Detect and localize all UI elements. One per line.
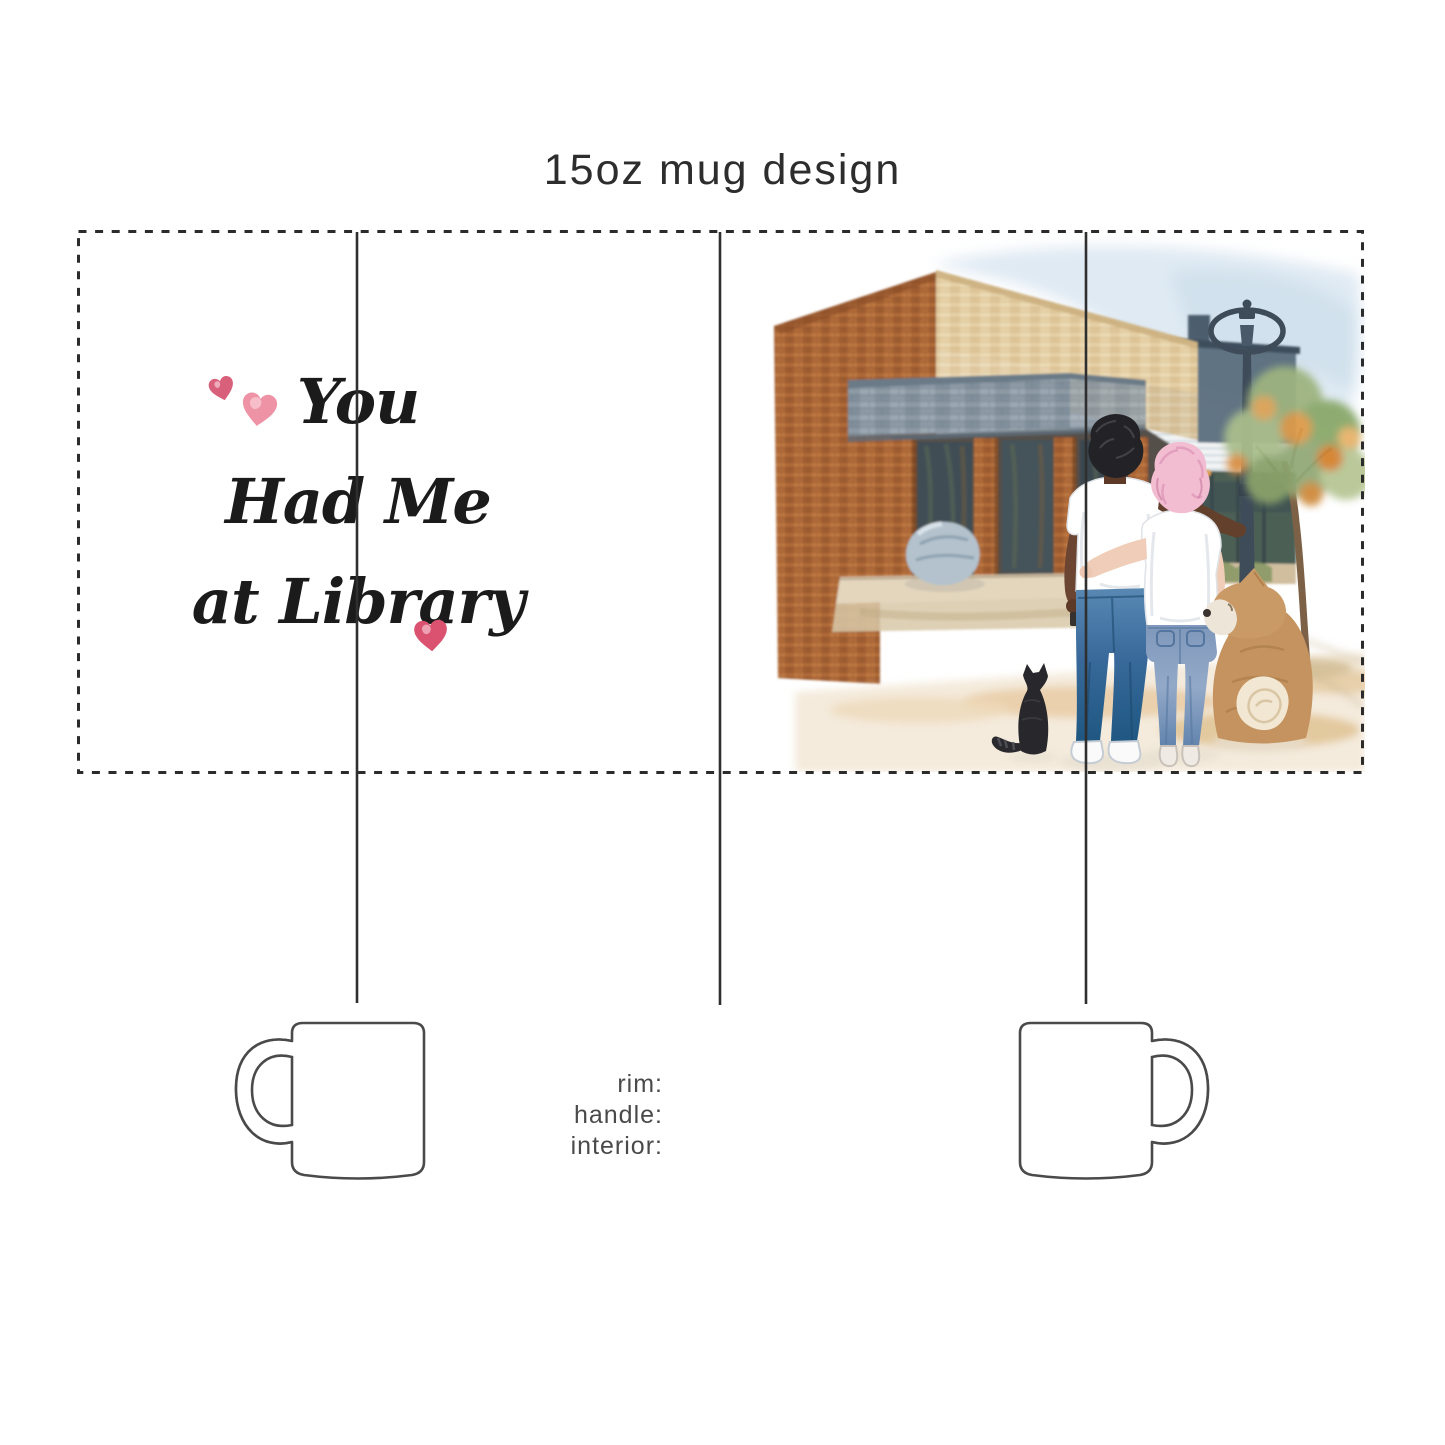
heart-shape	[240, 391, 278, 428]
interior-label: interior:	[363, 1131, 663, 1162]
rim-label: rim:	[363, 1069, 663, 1100]
heart-shape	[207, 375, 236, 403]
woman-heel	[1160, 746, 1178, 766]
mug-handle	[236, 1040, 292, 1144]
dog	[1203, 568, 1313, 744]
page-title: 15oz mug design	[0, 146, 1445, 195]
mug-design-template: 15oz mug design You Had Me at Library	[0, 0, 1445, 1445]
man-sneaker	[1109, 741, 1141, 763]
heart-icon	[233, 386, 284, 434]
library-scene-illustration	[740, 232, 1365, 772]
handle-label: handle:	[363, 1100, 663, 1131]
man-sneaker	[1071, 741, 1103, 763]
heart-shape	[414, 619, 449, 652]
right-mug-outline	[1020, 1023, 1208, 1179]
heart-icon	[409, 615, 454, 658]
mug-handle-hole	[252, 1056, 292, 1126]
quote-block: You Had Me at Library	[98, 352, 618, 652]
man-hair	[1088, 414, 1143, 478]
quote-line-3: at Library	[98, 552, 618, 652]
woman-heel	[1182, 746, 1199, 766]
quote-line-1: You	[98, 352, 618, 452]
quote-line-2: Had Me	[98, 452, 618, 552]
spec-labels: rim: handle: interior:	[363, 1069, 663, 1162]
